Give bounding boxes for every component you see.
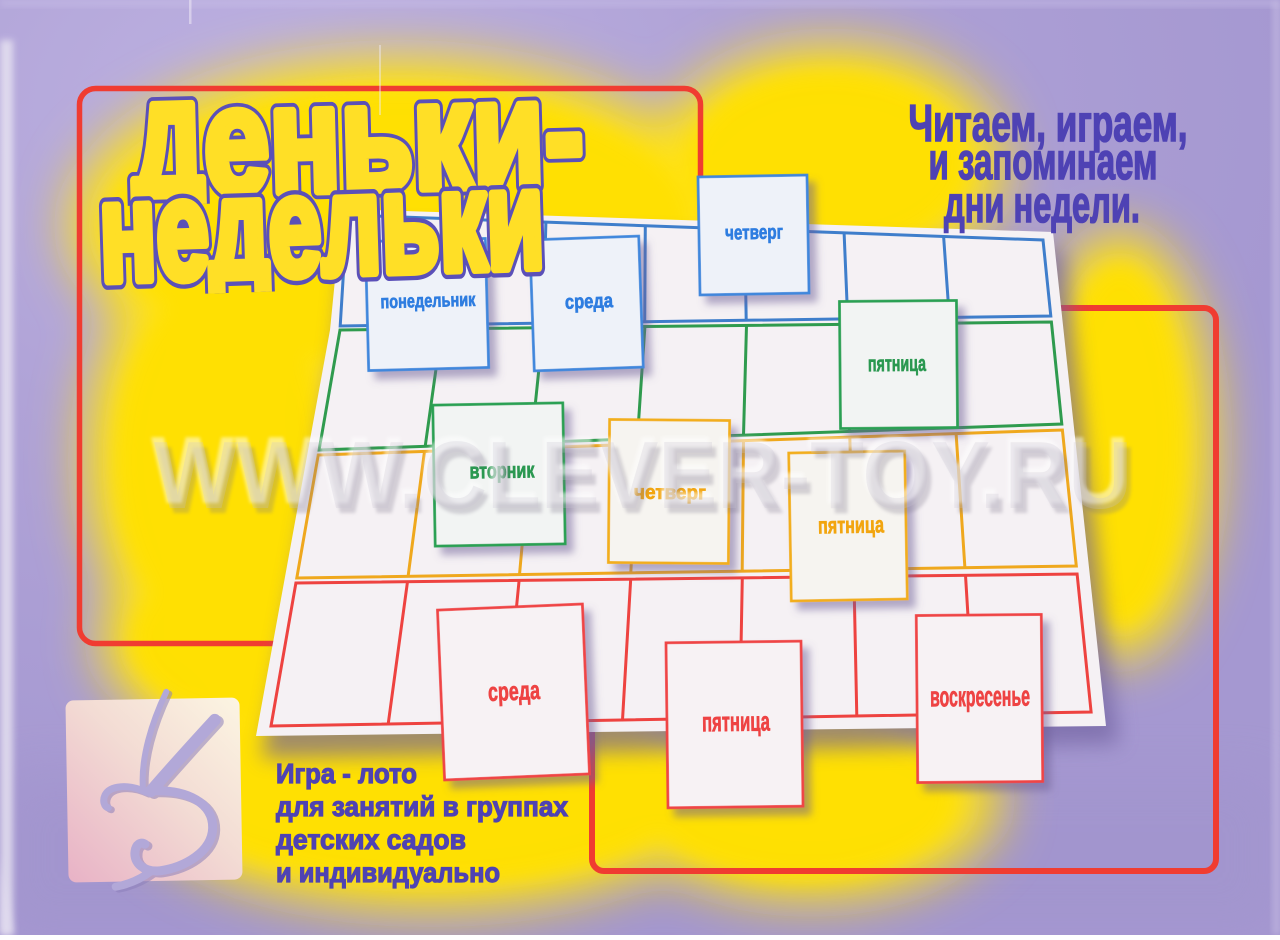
svg-text:среда: среда [565, 290, 614, 314]
svg-text:четверг: четверг [725, 221, 783, 244]
svg-text:среда: среда [487, 675, 541, 707]
svg-text:дни недели.: дни недели. [944, 176, 1140, 234]
svg-text:WWW.CLEVER-TOY.RU: WWW.CLEVER-TOY.RU [154, 422, 1132, 529]
svg-text:воскресенье: воскресенье [930, 681, 1030, 713]
svg-text:для занятий в группах: для занятий в группах [276, 791, 568, 822]
svg-text:детских садов: детских садов [276, 824, 466, 855]
svg-text:пятница: пятница [868, 351, 927, 377]
svg-text:понедельник: понедельник [380, 290, 476, 313]
svg-text:и индивидуально: и индивидуально [276, 857, 500, 888]
svg-text:пятница: пятница [702, 707, 771, 738]
svg-text:Игра - лото: Игра - лото [276, 758, 417, 789]
